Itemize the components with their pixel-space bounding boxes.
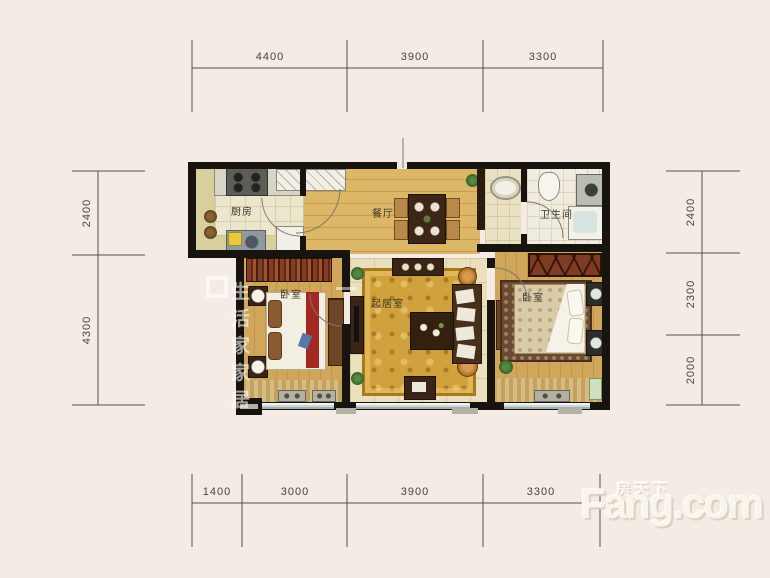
window-tag [558,408,582,414]
dim-label-bottom-1: 1400 [192,486,242,498]
dim-label-left-2: 4300 [81,305,93,355]
bathtub-inner [573,211,597,233]
sofa-cushion [456,307,475,322]
dining-chair [446,198,460,218]
wall-bath-stub-bottom [521,234,527,244]
pillow [268,300,282,328]
room-label-kitchen: 厨房 [231,207,253,219]
wall-right [602,162,610,410]
potted-plant-icon [351,267,364,280]
toilet-icon [538,172,560,201]
pillow [268,332,282,360]
tv-icon [354,306,359,342]
radiator [312,390,336,402]
wall-kitchen-stub-top [300,168,306,196]
bed-runner [306,292,319,368]
wall-bath-bottom [477,244,610,252]
room-label-dining: 餐厅 [372,209,394,221]
sofa [452,284,482,364]
window-bedroom-left [262,403,334,409]
wall-kitchen-bottom [188,250,350,258]
dim-label-bottom-4: 3300 [516,486,566,498]
wall-bath-stub-top [521,168,527,202]
wardrobe-right [528,253,602,277]
wall-bedroomL-divider-bottom [342,324,350,404]
bookshelf [246,258,332,282]
sofa-cushion [455,326,474,341]
dining-chair [446,220,460,240]
room-label-living-room: 起居室 [371,299,404,311]
dim-label-top-2: 3900 [390,51,440,63]
watermark-text: 生活家家居 [231,277,252,412]
dining-chair [394,220,408,240]
wall-left-upper [188,162,196,258]
dim-label-top-1: 4400 [245,51,295,63]
wall-bedroomR-divider-top [487,258,495,268]
dim-label-bottom-3: 3900 [390,486,440,498]
window-tag [452,408,478,414]
floorplan-page: 厨房 餐厅 卫生间 卧室 起居室 卧室 4400 3900 3300 1400 … [0,0,770,578]
dim-label-right-3: 2000 [685,345,697,395]
dim-label-right-2: 2300 [685,269,697,319]
radiator [278,390,306,402]
dining-chair [394,198,408,218]
sofa-cushion [456,344,476,359]
bathroom-sink-counter [576,174,604,206]
fang-logo: 房天下 Fang.com [578,470,770,545]
dim-label-top-3: 3300 [518,51,568,63]
coffee-table [410,312,454,350]
room-label-bedroom-left: 卧室 [280,290,302,302]
dim-label-right-1: 2400 [685,187,697,237]
pillow [567,317,585,344]
window-tag [336,408,356,414]
stove-icon [226,168,268,196]
laundry-basket [228,232,242,246]
wall-bedroomR-divider-bottom [487,300,495,404]
dining-table [408,194,446,244]
bowl-icon [204,210,217,223]
room-label-bedroom-right: 卧室 [522,293,544,305]
wall-kitchen-stub-bottom [300,236,306,252]
potted-plant-icon [499,360,513,374]
room-label-bathroom: 卫生间 [540,210,573,222]
sofa-cushion [455,289,475,304]
washbasin-icon [490,176,521,200]
radiator [534,390,570,402]
hall-table-decor [412,382,426,392]
bowl-icon [204,226,217,239]
wall-dining-right [477,168,485,230]
console-table [392,258,444,276]
dim-label-left-1: 2400 [81,188,93,238]
watermark-square-icon [206,276,228,298]
potted-plant-icon [351,372,364,385]
watermark-dash [336,287,356,290]
fang-logo-english: Fang.com [580,480,762,528]
planter-box [589,378,602,400]
dim-label-bottom-2: 3000 [270,486,320,498]
entry-door-gap [397,162,407,169]
entry-closet [276,169,346,191]
